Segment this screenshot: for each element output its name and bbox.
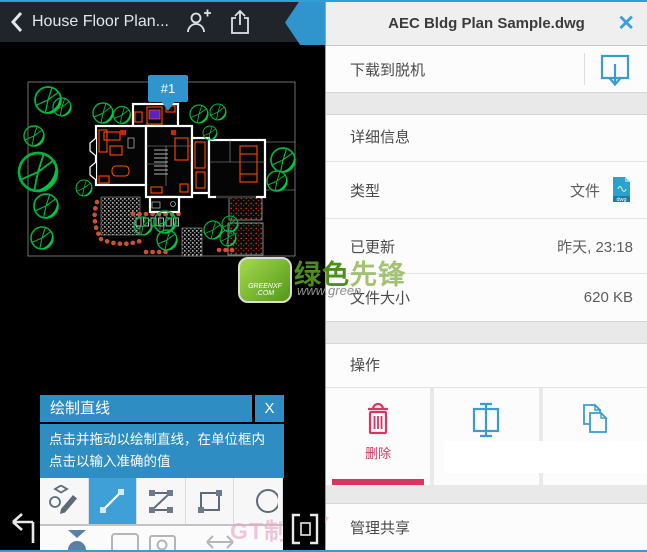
selected-action-indicator <box>332 479 424 485</box>
details-section-title: 详细信息 <box>326 115 647 162</box>
file-name-title: AEC Bldg Plan Sample.dwg <box>388 15 585 32</box>
window-top-border <box>0 0 647 2</box>
topbar-actions <box>185 9 251 35</box>
collapse-palette-icon <box>68 530 86 538</box>
copy-documents-icon <box>576 400 614 440</box>
bottom-bar-right <box>283 505 325 552</box>
delete-button[interactable]: 删除 <box>326 388 430 485</box>
row-divider <box>584 53 585 85</box>
trash-icon <box>360 400 396 438</box>
polyline-tool-icon <box>145 485 177 517</box>
delete-label: 删除 <box>365 443 391 462</box>
sketch-tool-button[interactable] <box>40 478 89 524</box>
detail-value: 文件 <box>570 180 600 201</box>
detail-value: 昨天, 23:18 <box>557 236 633 257</box>
actions-section-title: 操作 <box>326 343 647 388</box>
left-topbar: House Floor Plan... <box>0 2 325 42</box>
bottom-bar-left <box>0 505 40 552</box>
detail-row-type: 类型 文件 dwg <box>326 162 647 219</box>
detail-label: 类型 <box>350 180 380 201</box>
rename-icon <box>466 400 506 440</box>
download-offline-row[interactable]: 下载到脱机 <box>326 46 647 93</box>
rectangle-tool-button[interactable] <box>186 478 235 524</box>
line-tool-icon <box>96 485 128 517</box>
panel-header: AEC Bldg Plan Sample.dwg ✕ <box>326 2 647 46</box>
share-icon[interactable] <box>229 9 251 35</box>
panel-close-icon[interactable]: ✕ <box>617 11 635 36</box>
download-offline-label: 下载到脱机 <box>326 59 425 80</box>
add-person-icon[interactable] <box>185 9 213 35</box>
rectangle-tool-icon <box>194 485 226 517</box>
manage-sharing-row[interactable]: 管理共享 <box>326 503 647 552</box>
polyline-tool-button[interactable] <box>137 478 186 524</box>
drawing-title: House Floor Plan... <box>32 13 169 31</box>
watermark-url: www.green <box>297 283 361 298</box>
app-window: House Floor Plan... <box>0 0 647 552</box>
back-button[interactable] <box>8 8 26 36</box>
drawing-marker-pin-tip <box>161 101 175 118</box>
drawing-marker-pin[interactable]: #1 <box>148 75 188 102</box>
tooltip-close-button[interactable]: X <box>255 395 284 422</box>
tooltip-body: 点击并拖动以绘制直线，在单位框内点击以输入准确的值 <box>40 424 284 478</box>
watermark-logo: GREENXF .COM <box>238 257 292 303</box>
watermark-logo-text1: GREENXF <box>248 283 282 290</box>
viewport-layout-icon[interactable] <box>289 511 321 547</box>
svg-text:dwg: dwg <box>616 197 626 203</box>
download-icon[interactable] <box>597 51 633 89</box>
tooltip-title: 绘制直线 <box>40 395 252 422</box>
back-chevron-icon <box>8 8 26 36</box>
undo-back-arrow-icon[interactable] <box>5 511 37 547</box>
watermark-logo-text2: .COM <box>256 290 274 297</box>
manage-sharing-label: 管理共享 <box>326 504 647 552</box>
sketch-tool-icon <box>47 485 81 517</box>
line-tool-button[interactable] <box>89 478 138 524</box>
detail-value: 620 KB <box>584 289 633 306</box>
dwg-file-icon: dwg <box>610 176 633 204</box>
watermark-remnant-box <box>444 441 647 473</box>
